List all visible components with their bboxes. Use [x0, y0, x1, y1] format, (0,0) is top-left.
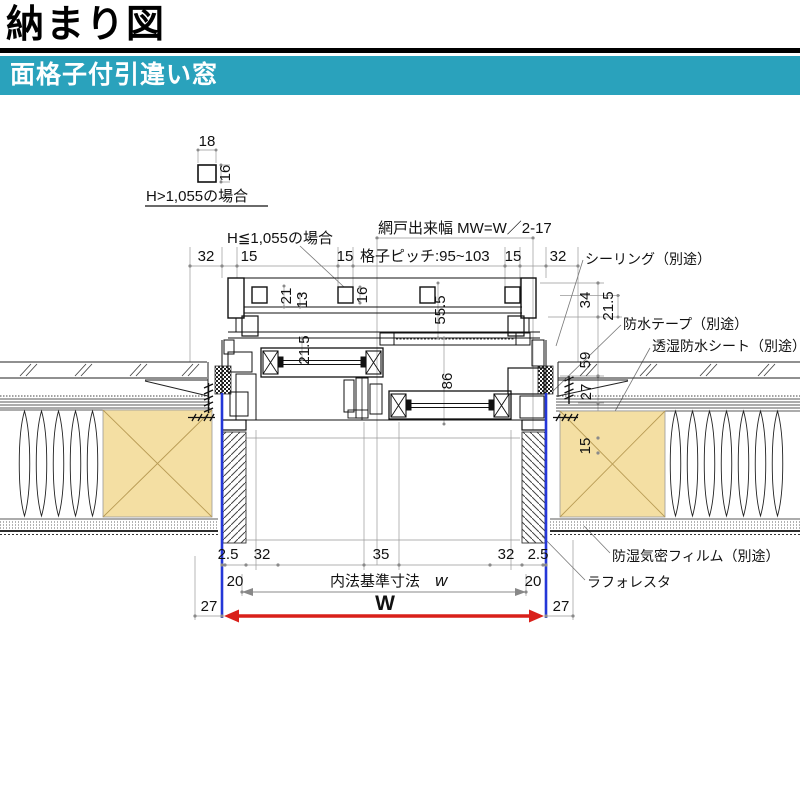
detail-caption: H>1,055の場合 [146, 188, 248, 205]
dim-13: 13 [294, 292, 311, 309]
inner-dim-label: 内法基準寸法 [330, 573, 420, 590]
dim-15-left: 15 [241, 248, 258, 265]
grille-case-label: H≦1,055の場合 [227, 230, 333, 247]
dim-2-5-right: 2.5 [528, 546, 549, 563]
grille-bar [505, 287, 520, 303]
dim-27-left: 27 [201, 598, 218, 615]
grille-bar [252, 287, 267, 303]
detail-dim-18: 18 [199, 133, 216, 150]
dim-55-5: 55.5 [432, 295, 449, 324]
detail-dim-16: 16 [217, 165, 234, 182]
dim-b32-left: 32 [254, 546, 271, 563]
interior-trim [223, 432, 545, 543]
window-frame [222, 332, 546, 430]
waterproof-tape-left [215, 366, 231, 394]
dim-21: 21 [278, 288, 295, 305]
tape-label: 防水テープ（別途） [623, 316, 748, 332]
dim-21-5-right: 21.5 [600, 291, 617, 320]
grille-bar [338, 287, 353, 303]
dim-20-right: 20 [525, 573, 542, 590]
inner-dim-var: w [435, 571, 449, 590]
sealing-label: シーリング（別途） [585, 251, 711, 267]
dim-15-right: 15 [505, 248, 522, 265]
width-var: W [375, 592, 395, 615]
detail-note: 18 16 H>1,055の場合 [145, 133, 268, 206]
dim-59: 59 [577, 352, 594, 369]
dim-34: 34 [577, 292, 594, 309]
insulation-left [19, 411, 98, 516]
dim-15-mid: 15 [337, 248, 354, 265]
dim-35: 35 [373, 546, 390, 563]
pitch-label: 格子ピッチ:95~103 [360, 248, 490, 265]
dim-27-right: 27 [553, 598, 570, 615]
sash-outer [261, 348, 383, 377]
laforesta-label: ラフォレスタ [587, 574, 671, 590]
mesh-width-label: 網戸出来幅 MW=W／2-17 [378, 220, 552, 237]
sash-inner [389, 391, 511, 419]
dim-16: 16 [354, 287, 371, 304]
sheet-label: 透湿防水シート（別途） [652, 338, 800, 354]
detail-drawing: 18 16 H>1,055の場合 H≦1,055の場合 網戸出来幅 MW=W／2… [0, 0, 800, 800]
screw-left-vertical [204, 383, 213, 413]
dim-21-5-left: 21.5 [296, 335, 313, 364]
wall-left [0, 362, 231, 535]
dim-86: 86 [439, 373, 456, 390]
dim-32-left: 32 [198, 248, 215, 265]
insulation-right [670, 411, 783, 516]
meeting-stile [344, 378, 382, 420]
film-label: 防湿気密フィルム（別途） [612, 548, 779, 564]
face-grille [228, 278, 536, 336]
dim-15-rot: 15 [577, 438, 594, 455]
dim-b32-right: 32 [498, 546, 515, 563]
dim-32-right: 32 [550, 248, 567, 265]
dim-27-rot: 27 [578, 384, 595, 401]
dim-2-5-left: 2.5 [218, 546, 239, 563]
dim-20-left: 20 [227, 573, 244, 590]
